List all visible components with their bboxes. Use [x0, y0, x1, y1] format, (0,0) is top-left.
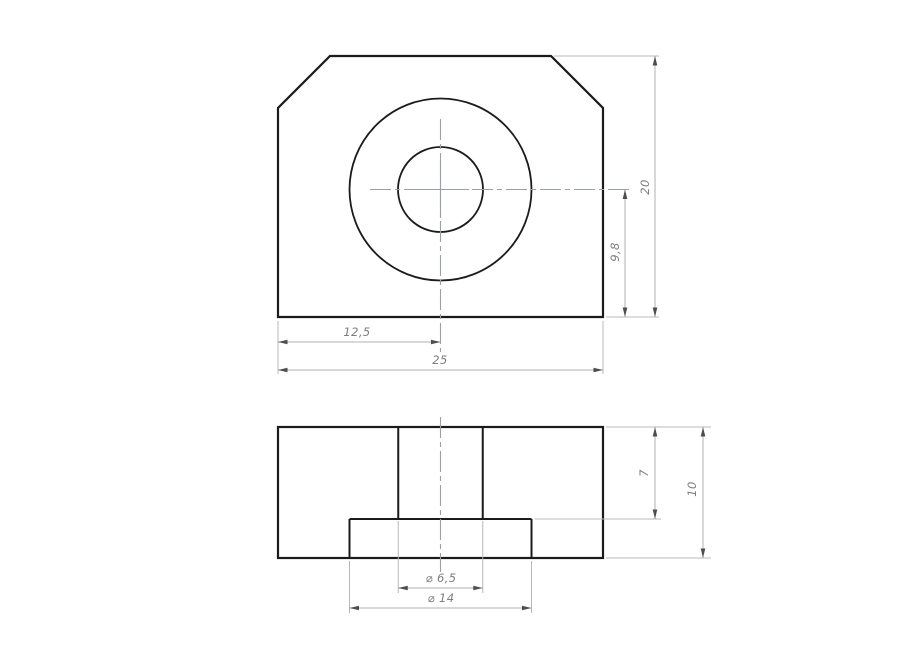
- front-view: 12,5 25 20 9,8: [278, 56, 659, 374]
- dim-hole-diameter: ⌀ 6,5: [398, 571, 483, 590]
- dim-overall-width-label: 25: [432, 353, 447, 367]
- dim-overall-height-label: 20: [638, 179, 652, 194]
- dim-bore-depth: 7: [637, 427, 657, 519]
- dim-center-to-bottom: 9,8: [608, 190, 627, 318]
- dimension-arrow: [398, 586, 408, 591]
- dimension-arrow: [431, 340, 441, 345]
- dimension-arrow: [473, 586, 483, 591]
- dim-center-offset-x: 12,5: [278, 325, 441, 344]
- technical-drawing: 12,5 25 20 9,8: [0, 0, 919, 650]
- dim-center-offset-x-label: 12,5: [343, 325, 370, 339]
- dimension-arrow: [623, 190, 628, 200]
- dim-overall-height: 20: [638, 56, 657, 317]
- dimension-arrow: [653, 56, 658, 66]
- section-view: 7 10 ⌀ 6,5 ⌀ 14: [278, 417, 711, 613]
- dim-overall-thickness-label: 10: [685, 481, 699, 496]
- dimension-arrow: [623, 308, 628, 318]
- dim-counterbore-diameter-label: ⌀ 14: [428, 591, 455, 605]
- dimension-arrow: [594, 368, 604, 373]
- dimension-arrow: [653, 427, 658, 437]
- page: { "front_view": { "dims": { "center_offs…: [0, 0, 919, 650]
- dimension-arrow: [701, 549, 706, 559]
- dimension-arrow: [701, 427, 706, 437]
- dim-overall-width: 25: [278, 353, 603, 372]
- dim-overall-thickness: 10: [685, 427, 705, 558]
- dimension-arrow: [522, 606, 532, 611]
- dimension-arrow: [653, 308, 658, 318]
- dim-hole-diameter-label: ⌀ 6,5: [426, 571, 457, 585]
- dim-bore-depth-label: 7: [637, 469, 651, 477]
- dimension-arrow: [653, 510, 658, 520]
- dim-center-to-bottom-label: 9,8: [608, 242, 622, 262]
- dimension-arrow: [278, 340, 288, 345]
- dimension-arrow: [350, 606, 360, 611]
- dim-counterbore-diameter: ⌀ 14: [350, 591, 532, 610]
- dimension-arrow: [278, 368, 288, 373]
- drawing-canvas: 12,5 25 20 9,8: [0, 0, 919, 650]
